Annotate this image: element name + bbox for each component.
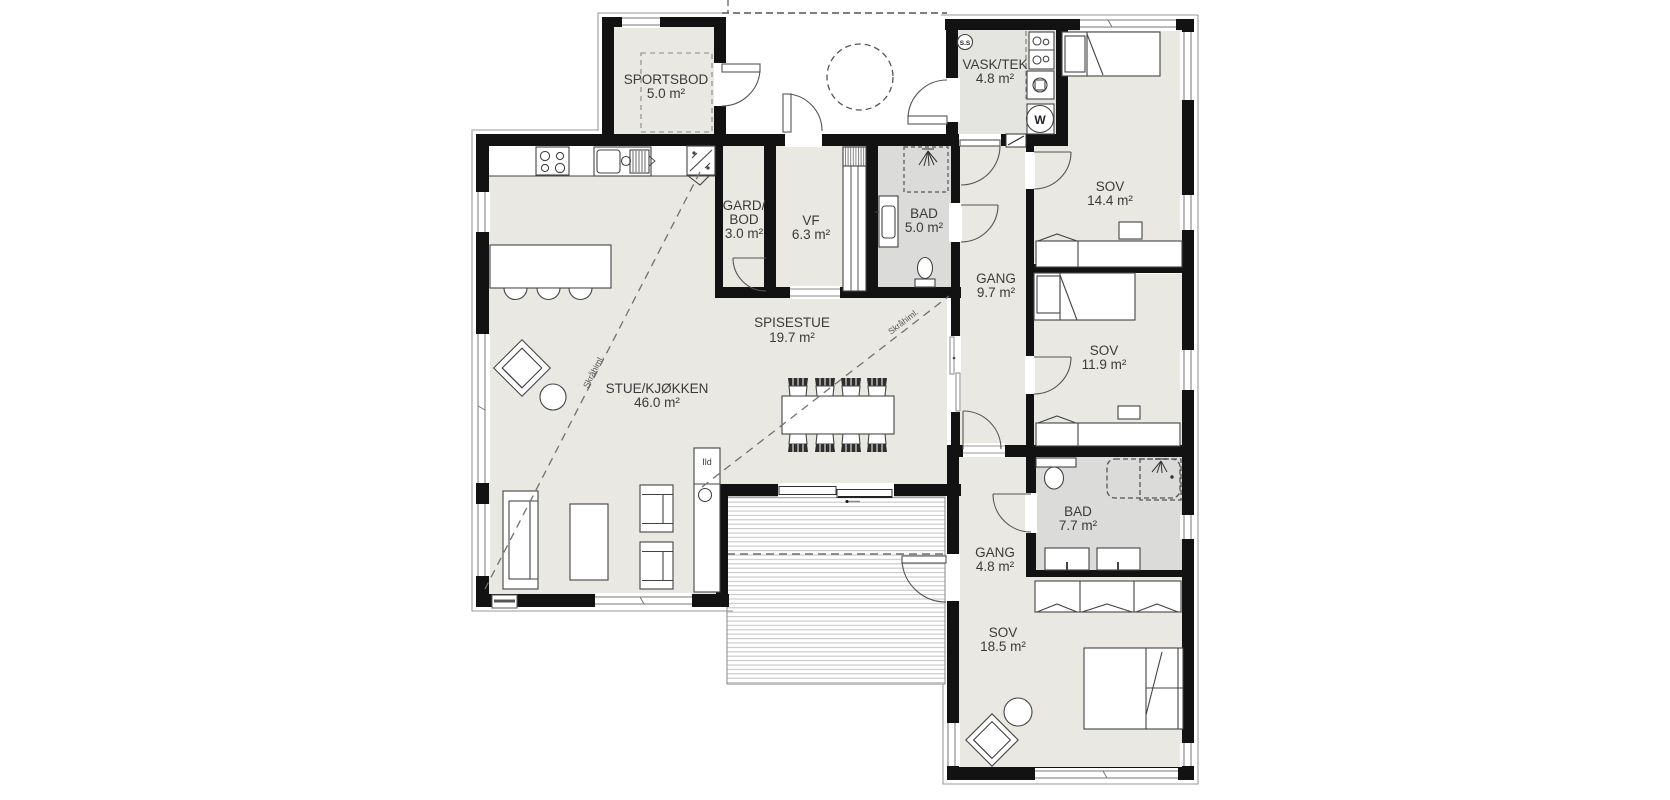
svg-text:SOV: SOV: [1096, 179, 1125, 194]
svg-text:VASK/TEK: VASK/TEK: [962, 57, 1027, 72]
svg-text:4.8 m²: 4.8 m²: [976, 71, 1015, 86]
svg-text:7.7 m²: 7.7 m²: [1059, 518, 1098, 533]
svg-text:5.0 m²: 5.0 m²: [647, 86, 686, 101]
svg-text:BAD: BAD: [1064, 504, 1092, 519]
svg-text:3.0 m²: 3.0 m²: [725, 226, 764, 241]
svg-text:18.5 m²: 18.5 m²: [980, 639, 1026, 654]
svg-text:S.S: S.S: [960, 40, 971, 47]
svg-text:19.7 m²: 19.7 m²: [769, 330, 815, 345]
svg-text:14.4 m²: 14.4 m²: [1087, 193, 1133, 208]
svg-text:SPISESTUE: SPISESTUE: [754, 315, 830, 330]
svg-text:11.9 m²: 11.9 m²: [1082, 357, 1127, 372]
svg-text:SPORTSBOD: SPORTSBOD: [624, 72, 709, 87]
svg-text:SOV: SOV: [1090, 343, 1119, 358]
svg-text:5.0 m²: 5.0 m²: [905, 220, 944, 235]
svg-text:Ild: Ild: [702, 457, 712, 467]
svg-text:GANG: GANG: [975, 545, 1015, 560]
svg-text:GANG: GANG: [976, 271, 1016, 286]
svg-text:STUE/KJØKKEN: STUE/KJØKKEN: [606, 381, 709, 396]
svg-text:VF: VF: [802, 213, 819, 228]
svg-text:W: W: [1034, 113, 1046, 127]
svg-text:46.0 m²: 46.0 m²: [634, 395, 680, 410]
svg-text:6.3 m²: 6.3 m²: [792, 227, 831, 242]
svg-text:BAD: BAD: [910, 206, 938, 221]
svg-text:4.8 m²: 4.8 m²: [976, 559, 1015, 574]
svg-text:SOV: SOV: [989, 625, 1018, 640]
svg-text:BOD: BOD: [729, 212, 759, 227]
svg-text:GARD/: GARD/: [723, 198, 766, 213]
svg-text:9.7 m²: 9.7 m²: [977, 285, 1016, 300]
